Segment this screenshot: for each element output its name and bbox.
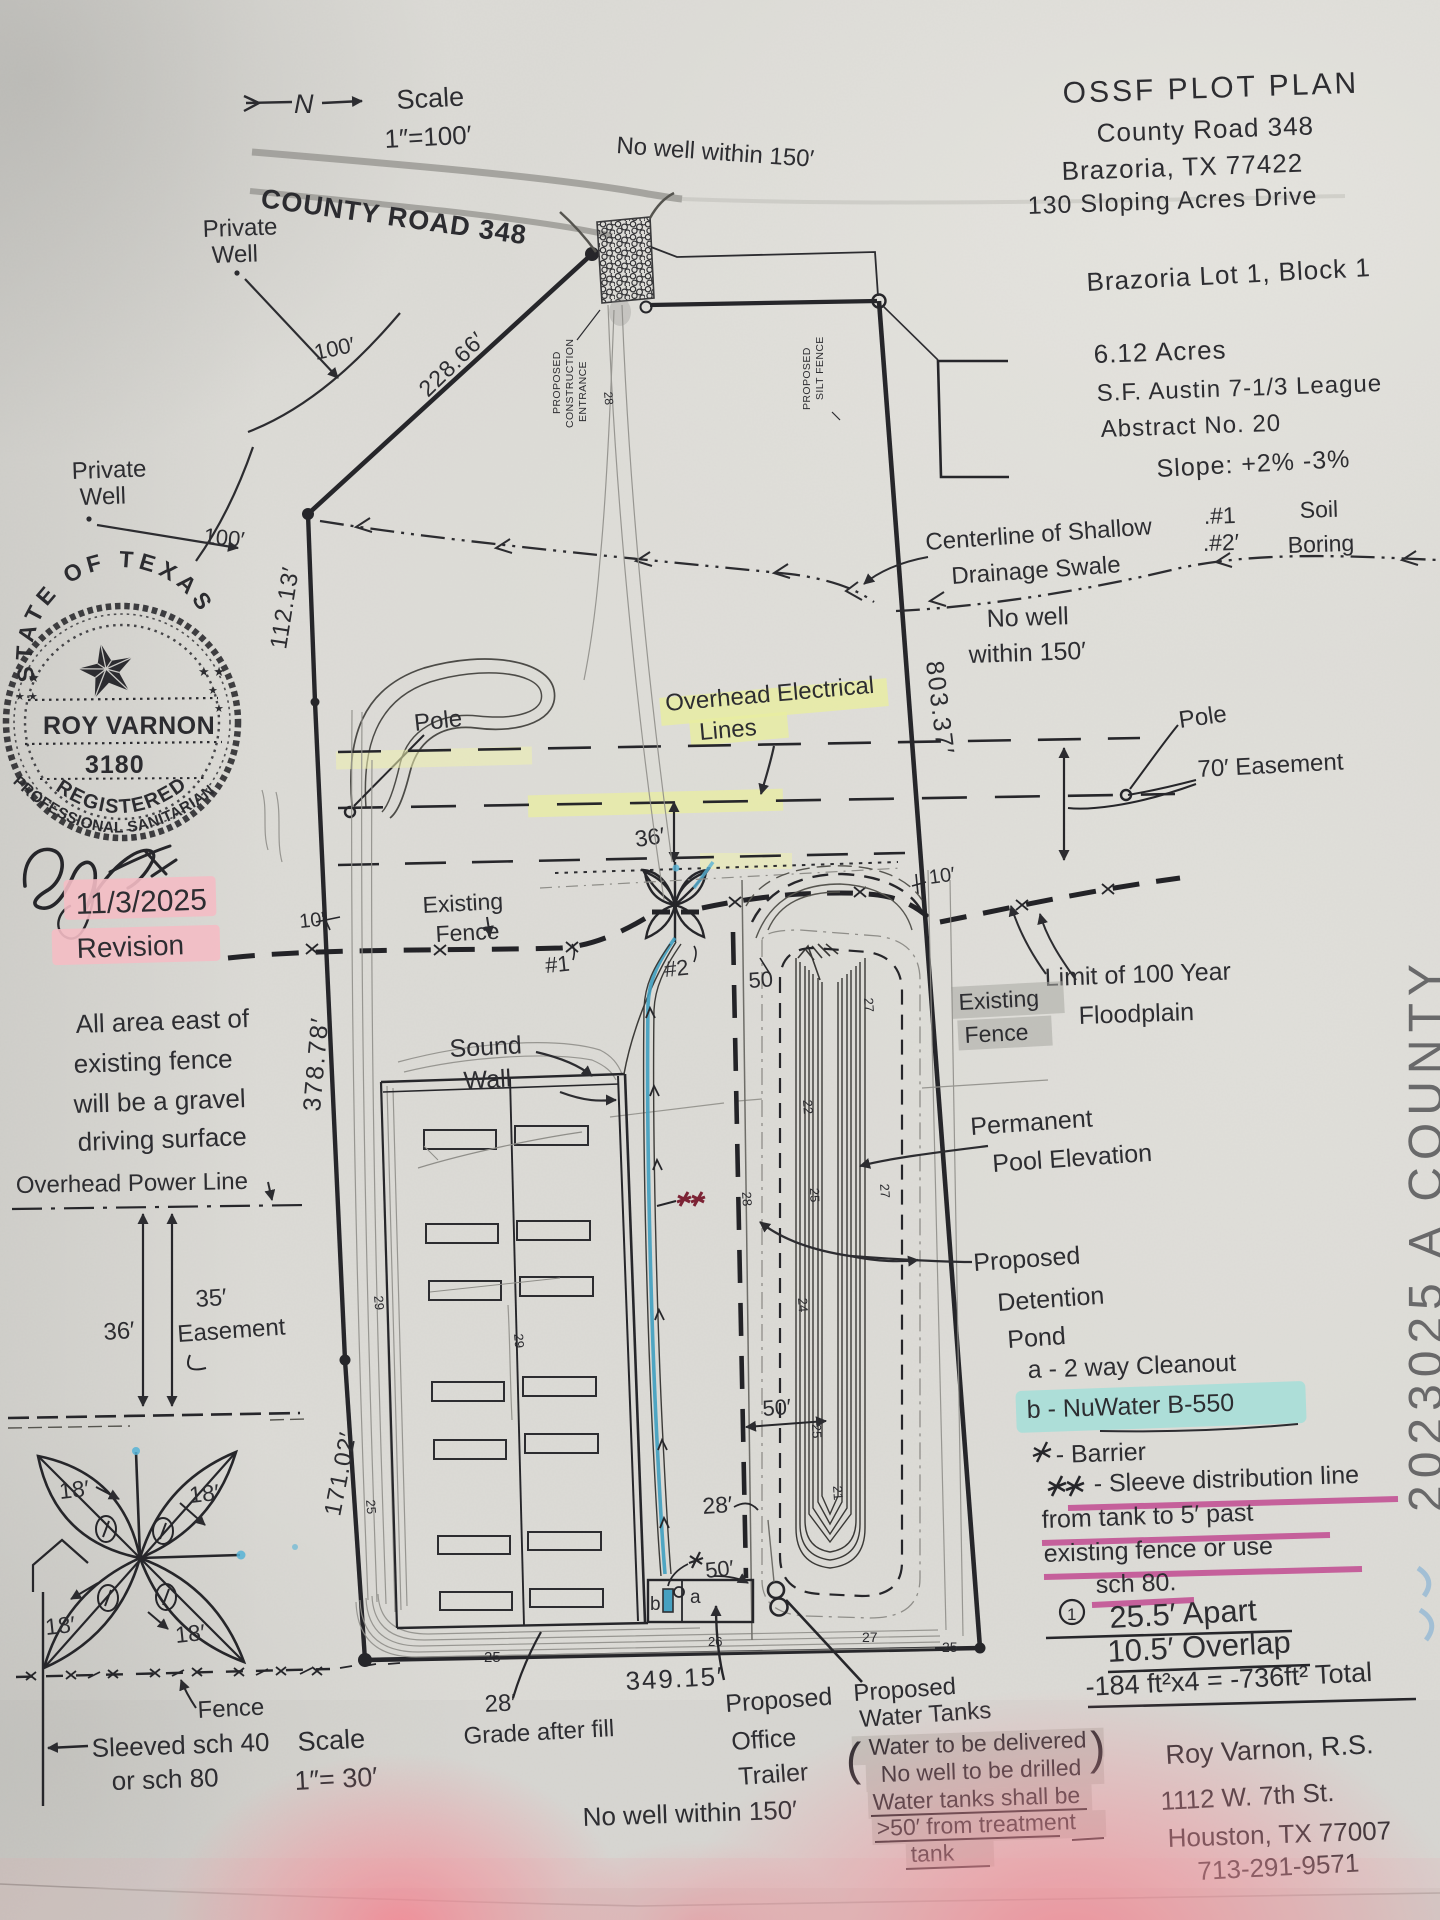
svg-text:28′: 28′	[702, 1491, 734, 1519]
svg-text:1: 1	[1067, 1605, 1076, 1624]
svg-text:25: 25	[809, 1424, 824, 1439]
svg-text:10′: 10′	[928, 864, 957, 889]
svg-text:27: 27	[861, 997, 877, 1012]
svg-text:2023025 A COUNTY: 2023025 A COUNTY	[1400, 957, 1440, 1512]
svg-text:Pond: Pond	[1006, 1322, 1066, 1354]
svg-text:Existing: Existing	[422, 888, 504, 918]
svg-text:Sleeved sch 40: Sleeved sch 40	[91, 1727, 270, 1763]
svg-text:CONSTRUCTION: CONSTRUCTION	[564, 339, 576, 428]
svg-text:18′: 18′	[188, 1479, 220, 1508]
svg-text:22: 22	[800, 1099, 816, 1114]
svg-text:SILT FENCE: SILT FENCE	[814, 336, 826, 400]
svg-text:25: 25	[807, 1188, 822, 1203]
svg-text:sch 80.: sch 80.	[1095, 1568, 1177, 1599]
svg-text:27: 27	[862, 1629, 878, 1645]
svg-text:Revision: Revision	[76, 929, 184, 964]
svg-text:Fence: Fence	[964, 1019, 1029, 1048]
svg-text:b: b	[650, 1594, 661, 1615]
svg-text:28: 28	[601, 391, 616, 406]
svg-text:27: 27	[877, 1183, 893, 1198]
svg-text:18′: 18′	[44, 1611, 76, 1640]
svg-text:35′: 35′	[195, 1284, 229, 1313]
svg-text:25: 25	[942, 1639, 958, 1655]
svg-text:No well: No well	[986, 602, 1069, 633]
svg-text:Lines: Lines	[698, 714, 758, 746]
svg-text:.#2′: .#2′	[1202, 529, 1239, 556]
svg-text:11/3/2025: 11/3/2025	[75, 883, 207, 921]
svg-text:18′: 18′	[58, 1475, 90, 1504]
svg-text:★: ★	[214, 703, 224, 715]
svg-text:will be a gravel: will be a gravel	[72, 1083, 246, 1119]
svg-text:existing fence: existing fence	[73, 1043, 233, 1079]
svg-text:★: ★	[208, 685, 218, 697]
svg-text:26: 26	[708, 1634, 722, 1649]
svg-text:Sound: Sound	[449, 1031, 523, 1063]
svg-text:18′: 18′	[174, 1619, 206, 1648]
svg-text:driving surface: driving surface	[77, 1121, 247, 1157]
svg-text:28: 28	[739, 1191, 755, 1206]
svg-text:ROY VARNON: ROY VARNON	[43, 712, 215, 740]
svg-text:28′: 28′	[484, 1689, 517, 1718]
svg-text:#1: #1	[544, 951, 571, 978]
svg-text:Wall: Wall	[463, 1065, 512, 1095]
svg-text:1″=100′: 1″=100′	[384, 119, 473, 154]
svg-text:a: a	[690, 1587, 701, 1608]
svg-text:Scale: Scale	[396, 81, 465, 114]
svg-text:36′: 36′	[103, 1317, 137, 1346]
svg-text:36′: 36′	[633, 822, 666, 852]
svg-text:★ ★: ★ ★	[198, 664, 225, 679]
svg-text:Scale: Scale	[297, 1723, 366, 1756]
svg-text:50′: 50′	[762, 1394, 792, 1421]
svg-text:- Barrier: - Barrier	[1055, 1438, 1146, 1469]
svg-text:All area east of: All area east of	[75, 1003, 250, 1039]
svg-text:Pole: Pole	[413, 705, 464, 737]
svg-text:★: ★	[28, 670, 40, 685]
svg-text:50′: 50′	[704, 1555, 735, 1583]
svg-text:PROPOSED: PROPOSED	[801, 347, 813, 410]
svg-text:29: 29	[371, 1295, 387, 1311]
svg-text:Soil: Soil	[1299, 496, 1338, 523]
svg-text:50: 50	[748, 966, 774, 993]
svg-text:.#1: .#1	[1203, 502, 1236, 529]
svg-text:349.15′: 349.15′	[625, 1661, 725, 1696]
svg-text:Private: Private	[202, 213, 278, 243]
svg-text:100′: 100′	[202, 523, 245, 552]
svg-text:Private: Private	[71, 455, 147, 485]
svg-text:Boring: Boring	[1287, 530, 1354, 558]
svg-text:Office: Office	[730, 1724, 797, 1756]
svg-text:PROPOSED: PROPOSED	[551, 351, 563, 414]
svg-text:25: 25	[363, 1499, 379, 1515]
svg-text:25: 25	[484, 1649, 501, 1666]
svg-text:Overhead Power Line: Overhead Power Line	[16, 1168, 249, 1199]
svg-text:Well: Well	[211, 240, 258, 269]
svg-text:N: N	[294, 89, 314, 119]
svg-text:Floodplain: Floodplain	[1078, 998, 1194, 1030]
svg-text:24: 24	[795, 1297, 811, 1312]
svg-text:21: 21	[830, 1485, 846, 1500]
svg-text:3180: 3180	[85, 751, 145, 779]
svg-text:29: 29	[511, 1333, 527, 1349]
svg-text:6.12 Acres: 6.12 Acres	[1093, 334, 1227, 369]
svg-text:or sch 80: or sch 80	[111, 1762, 219, 1796]
svg-text:Fence: Fence	[197, 1694, 265, 1724]
svg-text:Well: Well	[79, 482, 126, 511]
svg-text:within 150′: within 150′	[967, 637, 1086, 669]
svg-text:★ ★: ★ ★	[15, 691, 38, 703]
svg-text:Existing: Existing	[958, 985, 1040, 1015]
svg-text:ENTRANCE: ENTRANCE	[577, 361, 589, 422]
